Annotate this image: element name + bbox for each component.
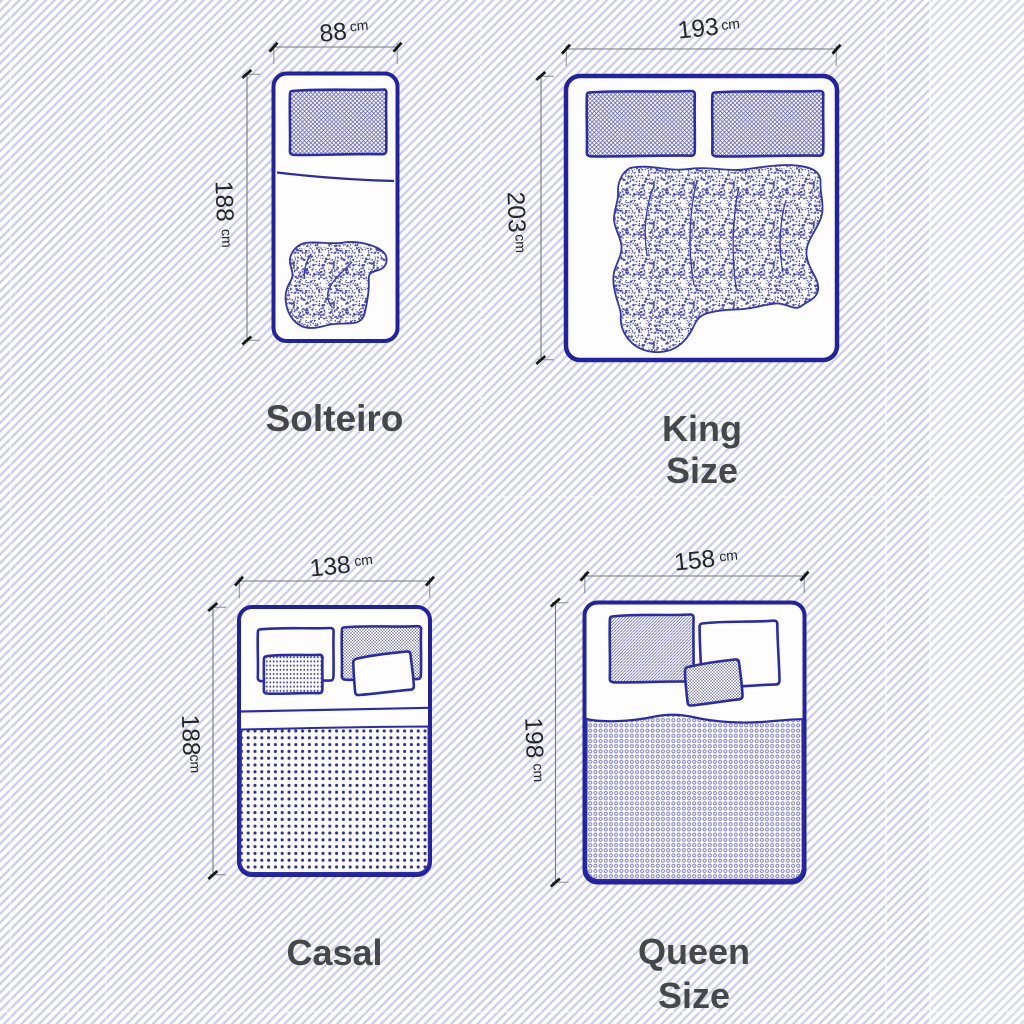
svg-text:188: 188 [176, 714, 204, 756]
svg-text:Solteiro: Solteiro [266, 398, 404, 439]
svg-text:Size: Size [658, 975, 730, 1016]
svg-text:Queen: Queen [638, 931, 750, 972]
svg-text:203: 203 [501, 191, 529, 233]
svg-text:188: 188 [209, 180, 237, 222]
svg-text:138: 138 [308, 551, 351, 582]
svg-text:King: King [662, 408, 742, 449]
svg-text:cm: cm [718, 547, 738, 565]
svg-text:198: 198 [519, 717, 547, 759]
svg-text:cm: cm [353, 551, 373, 569]
svg-text:cm: cm [530, 763, 547, 782]
svg-text:158: 158 [673, 545, 716, 576]
svg-text:cm: cm [720, 15, 740, 33]
svg-text:cm: cm [219, 229, 236, 248]
svg-text:Casal: Casal [286, 932, 382, 973]
svg-text:193: 193 [676, 13, 719, 44]
svg-text:88: 88 [318, 18, 348, 48]
svg-text:cm: cm [349, 17, 369, 35]
svg-text:Size: Size [666, 450, 738, 491]
svg-text:cm: cm [187, 754, 204, 773]
svg-text:cm: cm [512, 234, 529, 253]
